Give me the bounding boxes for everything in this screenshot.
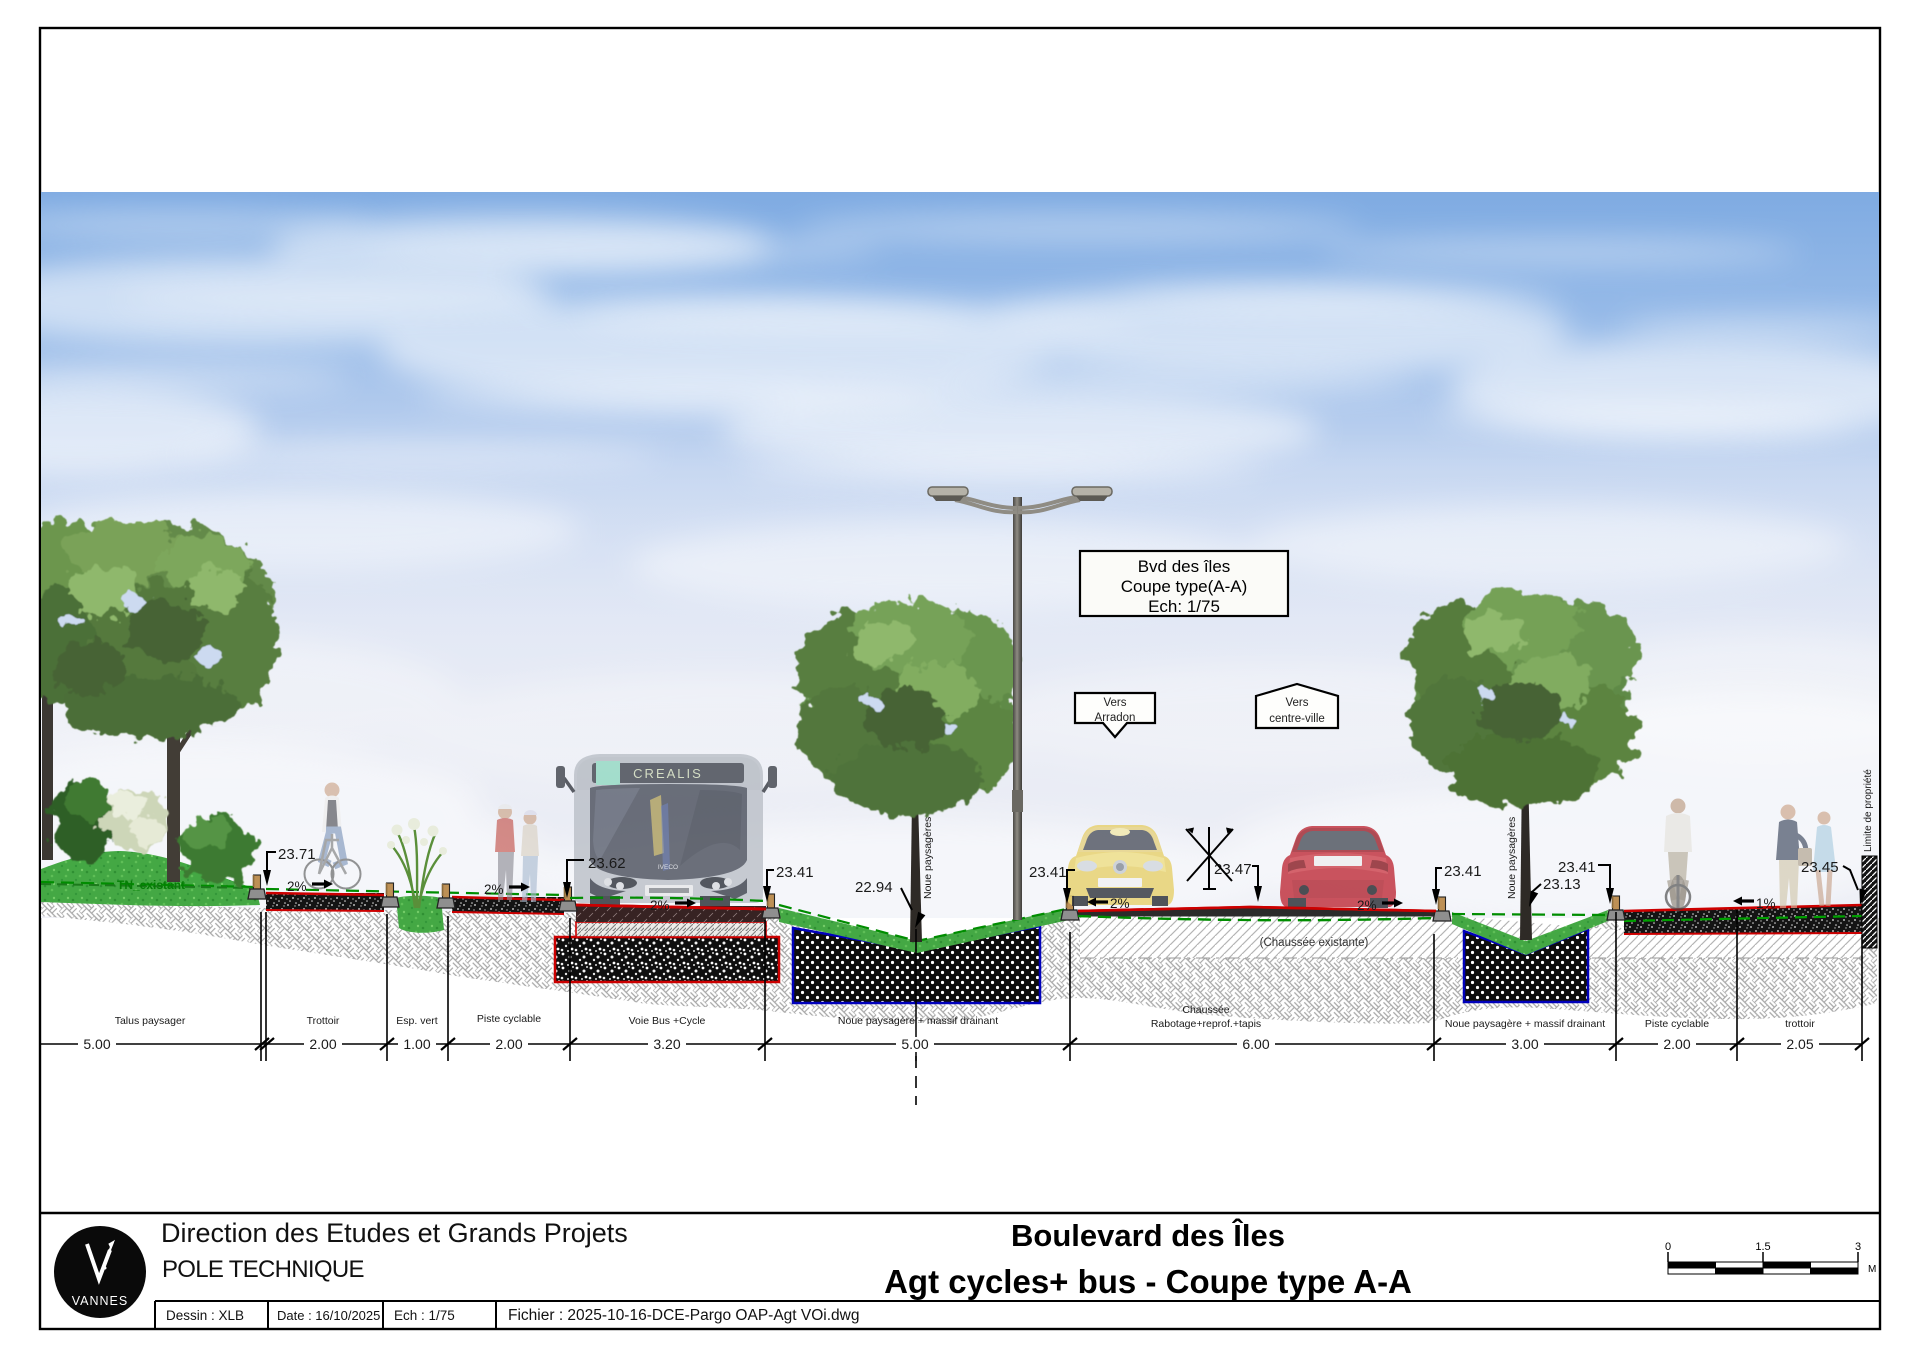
svg-text:trottoir: trottoir — [1785, 1018, 1815, 1030]
svg-text:23.71: 23.71 — [278, 846, 316, 863]
svg-text:(Chaussée existante): (Chaussée existante) — [1260, 937, 1369, 949]
svg-text:23.47: 23.47 — [1214, 861, 1252, 878]
svg-text:Rabotage+reprof.+tapis: Rabotage+reprof.+tapis — [1151, 1018, 1261, 1030]
svg-text:Dessin : XLB: Dessin : XLB — [166, 1308, 244, 1323]
svg-text:Date : 16/10/2025: Date : 16/10/2025 — [277, 1308, 380, 1323]
svg-text:Arradon: Arradon — [1095, 712, 1136, 724]
svg-text:23.41: 23.41 — [1558, 859, 1596, 876]
svg-text:CREALIS: CREALIS — [633, 766, 703, 781]
svg-text:2%: 2% — [287, 879, 307, 894]
svg-text:2%: 2% — [1357, 898, 1377, 913]
svg-text:Piste cyclable: Piste cyclable — [477, 1013, 541, 1025]
svg-text:M: M — [1868, 1264, 1876, 1275]
svg-text:Noue paysagère + massif draina: Noue paysagère + massif drainant — [838, 1015, 998, 1027]
svg-text:Ech : 1/75: Ech : 1/75 — [394, 1308, 455, 1323]
svg-text:Chaussée: Chaussée — [1182, 1004, 1229, 1016]
svg-text:Limite de propriété: Limite de propriété — [1863, 769, 1874, 852]
svg-text:Noue paysagère + massif draina: Noue paysagère + massif drainant — [1445, 1018, 1605, 1030]
svg-text:23.45: 23.45 — [1801, 859, 1839, 876]
svg-text:centre-ville: centre-ville — [1269, 713, 1325, 725]
svg-text:2%: 2% — [1110, 896, 1130, 911]
svg-text:POLE TECHNIQUE: POLE TECHNIQUE — [162, 1256, 364, 1283]
svg-text:Fichier : 2025-10-16-DCE-Pargo: Fichier : 2025-10-16-DCE-Pargo OAP-Agt V… — [508, 1307, 859, 1324]
svg-text:2.00: 2.00 — [495, 1036, 522, 1052]
svg-text:23.41: 23.41 — [1444, 863, 1482, 880]
svg-text:23.62: 23.62 — [588, 855, 626, 872]
svg-text:Noue paysagères: Noue paysagères — [922, 817, 934, 899]
svg-text:Direction des Etudes et Grands: Direction des Etudes et Grands Projets — [161, 1218, 628, 1248]
svg-text:Trottoir: Trottoir — [307, 1015, 340, 1027]
svg-text:IVECO: IVECO — [658, 864, 678, 871]
svg-text:23.41: 23.41 — [1029, 864, 1067, 881]
svg-text:Bvd des îles: Bvd des îles — [1138, 557, 1231, 576]
svg-text:0: 0 — [1665, 1241, 1671, 1253]
svg-text:Vers: Vers — [1285, 697, 1308, 709]
svg-text:2.00: 2.00 — [1663, 1036, 1690, 1052]
svg-text:5.00: 5.00 — [901, 1036, 928, 1052]
svg-text:23.41: 23.41 — [776, 864, 814, 881]
svg-text:TN_existant: TN_existant — [117, 878, 185, 892]
svg-text:22.94: 22.94 — [855, 879, 893, 896]
svg-text:VANNES: VANNES — [72, 1294, 128, 1308]
svg-text:1.00: 1.00 — [403, 1036, 430, 1052]
svg-text:Vers: Vers — [1103, 697, 1126, 709]
svg-text:Boulevard des Îles: Boulevard des Îles — [1011, 1217, 1285, 1253]
svg-text:2%: 2% — [650, 898, 670, 913]
svg-text:1%: 1% — [1756, 896, 1776, 911]
svg-text:2.05: 2.05 — [1786, 1036, 1813, 1052]
svg-text:5.00: 5.00 — [83, 1036, 110, 1052]
svg-text:3.00: 3.00 — [1511, 1036, 1538, 1052]
svg-text:2.00: 2.00 — [309, 1036, 336, 1052]
svg-text:2%: 2% — [484, 882, 504, 897]
svg-text:Ech: 1/75: Ech: 1/75 — [1148, 597, 1220, 616]
svg-text:3: 3 — [1855, 1241, 1861, 1253]
svg-text:Voie Bus +Cycle: Voie Bus +Cycle — [629, 1015, 706, 1027]
svg-text:Noue paysagères: Noue paysagères — [1506, 817, 1518, 899]
svg-text:Talus paysager: Talus paysager — [115, 1015, 186, 1027]
svg-text:1.5: 1.5 — [1755, 1241, 1770, 1253]
svg-text:23.13: 23.13 — [1543, 876, 1581, 893]
svg-text:Coupe type(A-A): Coupe type(A-A) — [1121, 577, 1248, 596]
svg-text:3.20: 3.20 — [653, 1036, 680, 1052]
svg-text:6.00: 6.00 — [1242, 1036, 1269, 1052]
svg-text:Esp. vert: Esp. vert — [396, 1015, 438, 1027]
svg-text:Piste cyclable: Piste cyclable — [1645, 1018, 1709, 1030]
svg-text:Agt cycles+ bus - Coupe type A: Agt cycles+ bus - Coupe type A-A — [884, 1263, 1412, 1300]
